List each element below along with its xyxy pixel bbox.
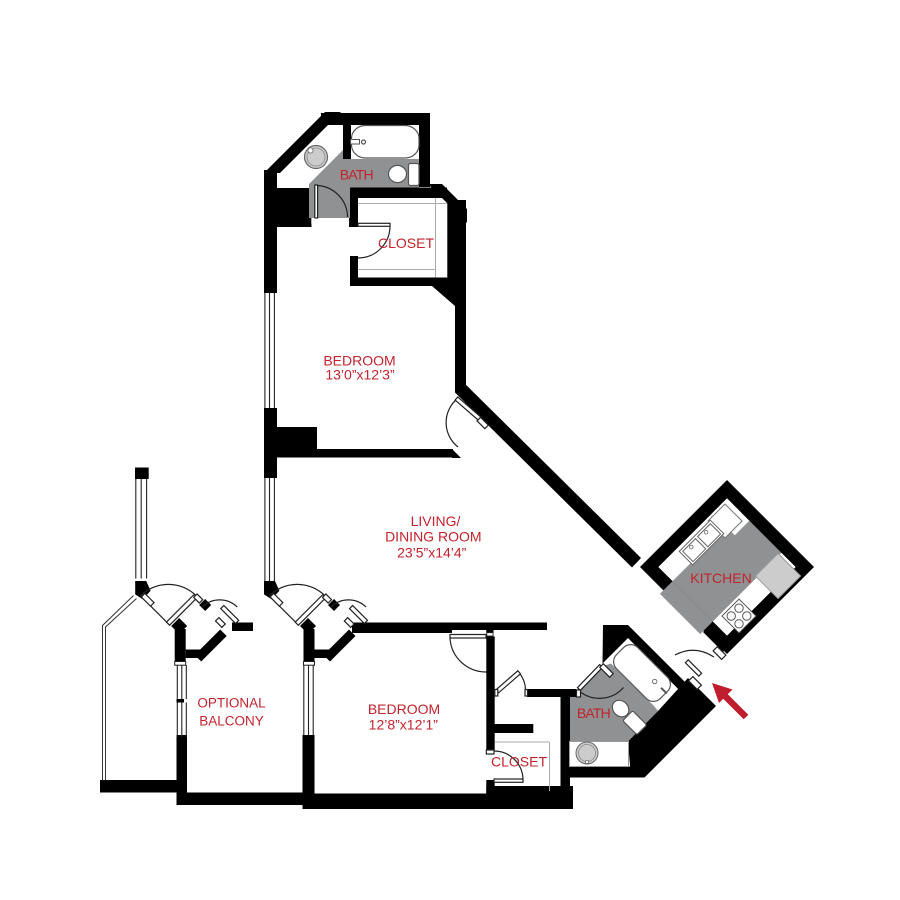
svg-text:23’5”x14’4”: 23’5”x14’4” (397, 545, 467, 561)
svg-text:CLOSET: CLOSET (378, 235, 434, 251)
svg-text:BALCONY: BALCONY (199, 714, 264, 729)
svg-text:BATH: BATH (577, 705, 610, 721)
svg-text:DINING ROOM: DINING ROOM (385, 529, 481, 545)
svg-text:OPTIONAL: OPTIONAL (197, 696, 266, 711)
svg-text:BEDROOM: BEDROOM (368, 701, 440, 717)
svg-text:LIVING/: LIVING/ (411, 513, 461, 529)
svg-text:13’0”x12’3”: 13’0”x12’3” (325, 367, 395, 383)
svg-text:BATH: BATH (340, 167, 373, 183)
svg-text:12’8”x12’1”: 12’8”x12’1” (369, 717, 439, 733)
svg-text:KITCHEN: KITCHEN (690, 570, 751, 586)
svg-text:CLOSET: CLOSET (491, 754, 547, 770)
